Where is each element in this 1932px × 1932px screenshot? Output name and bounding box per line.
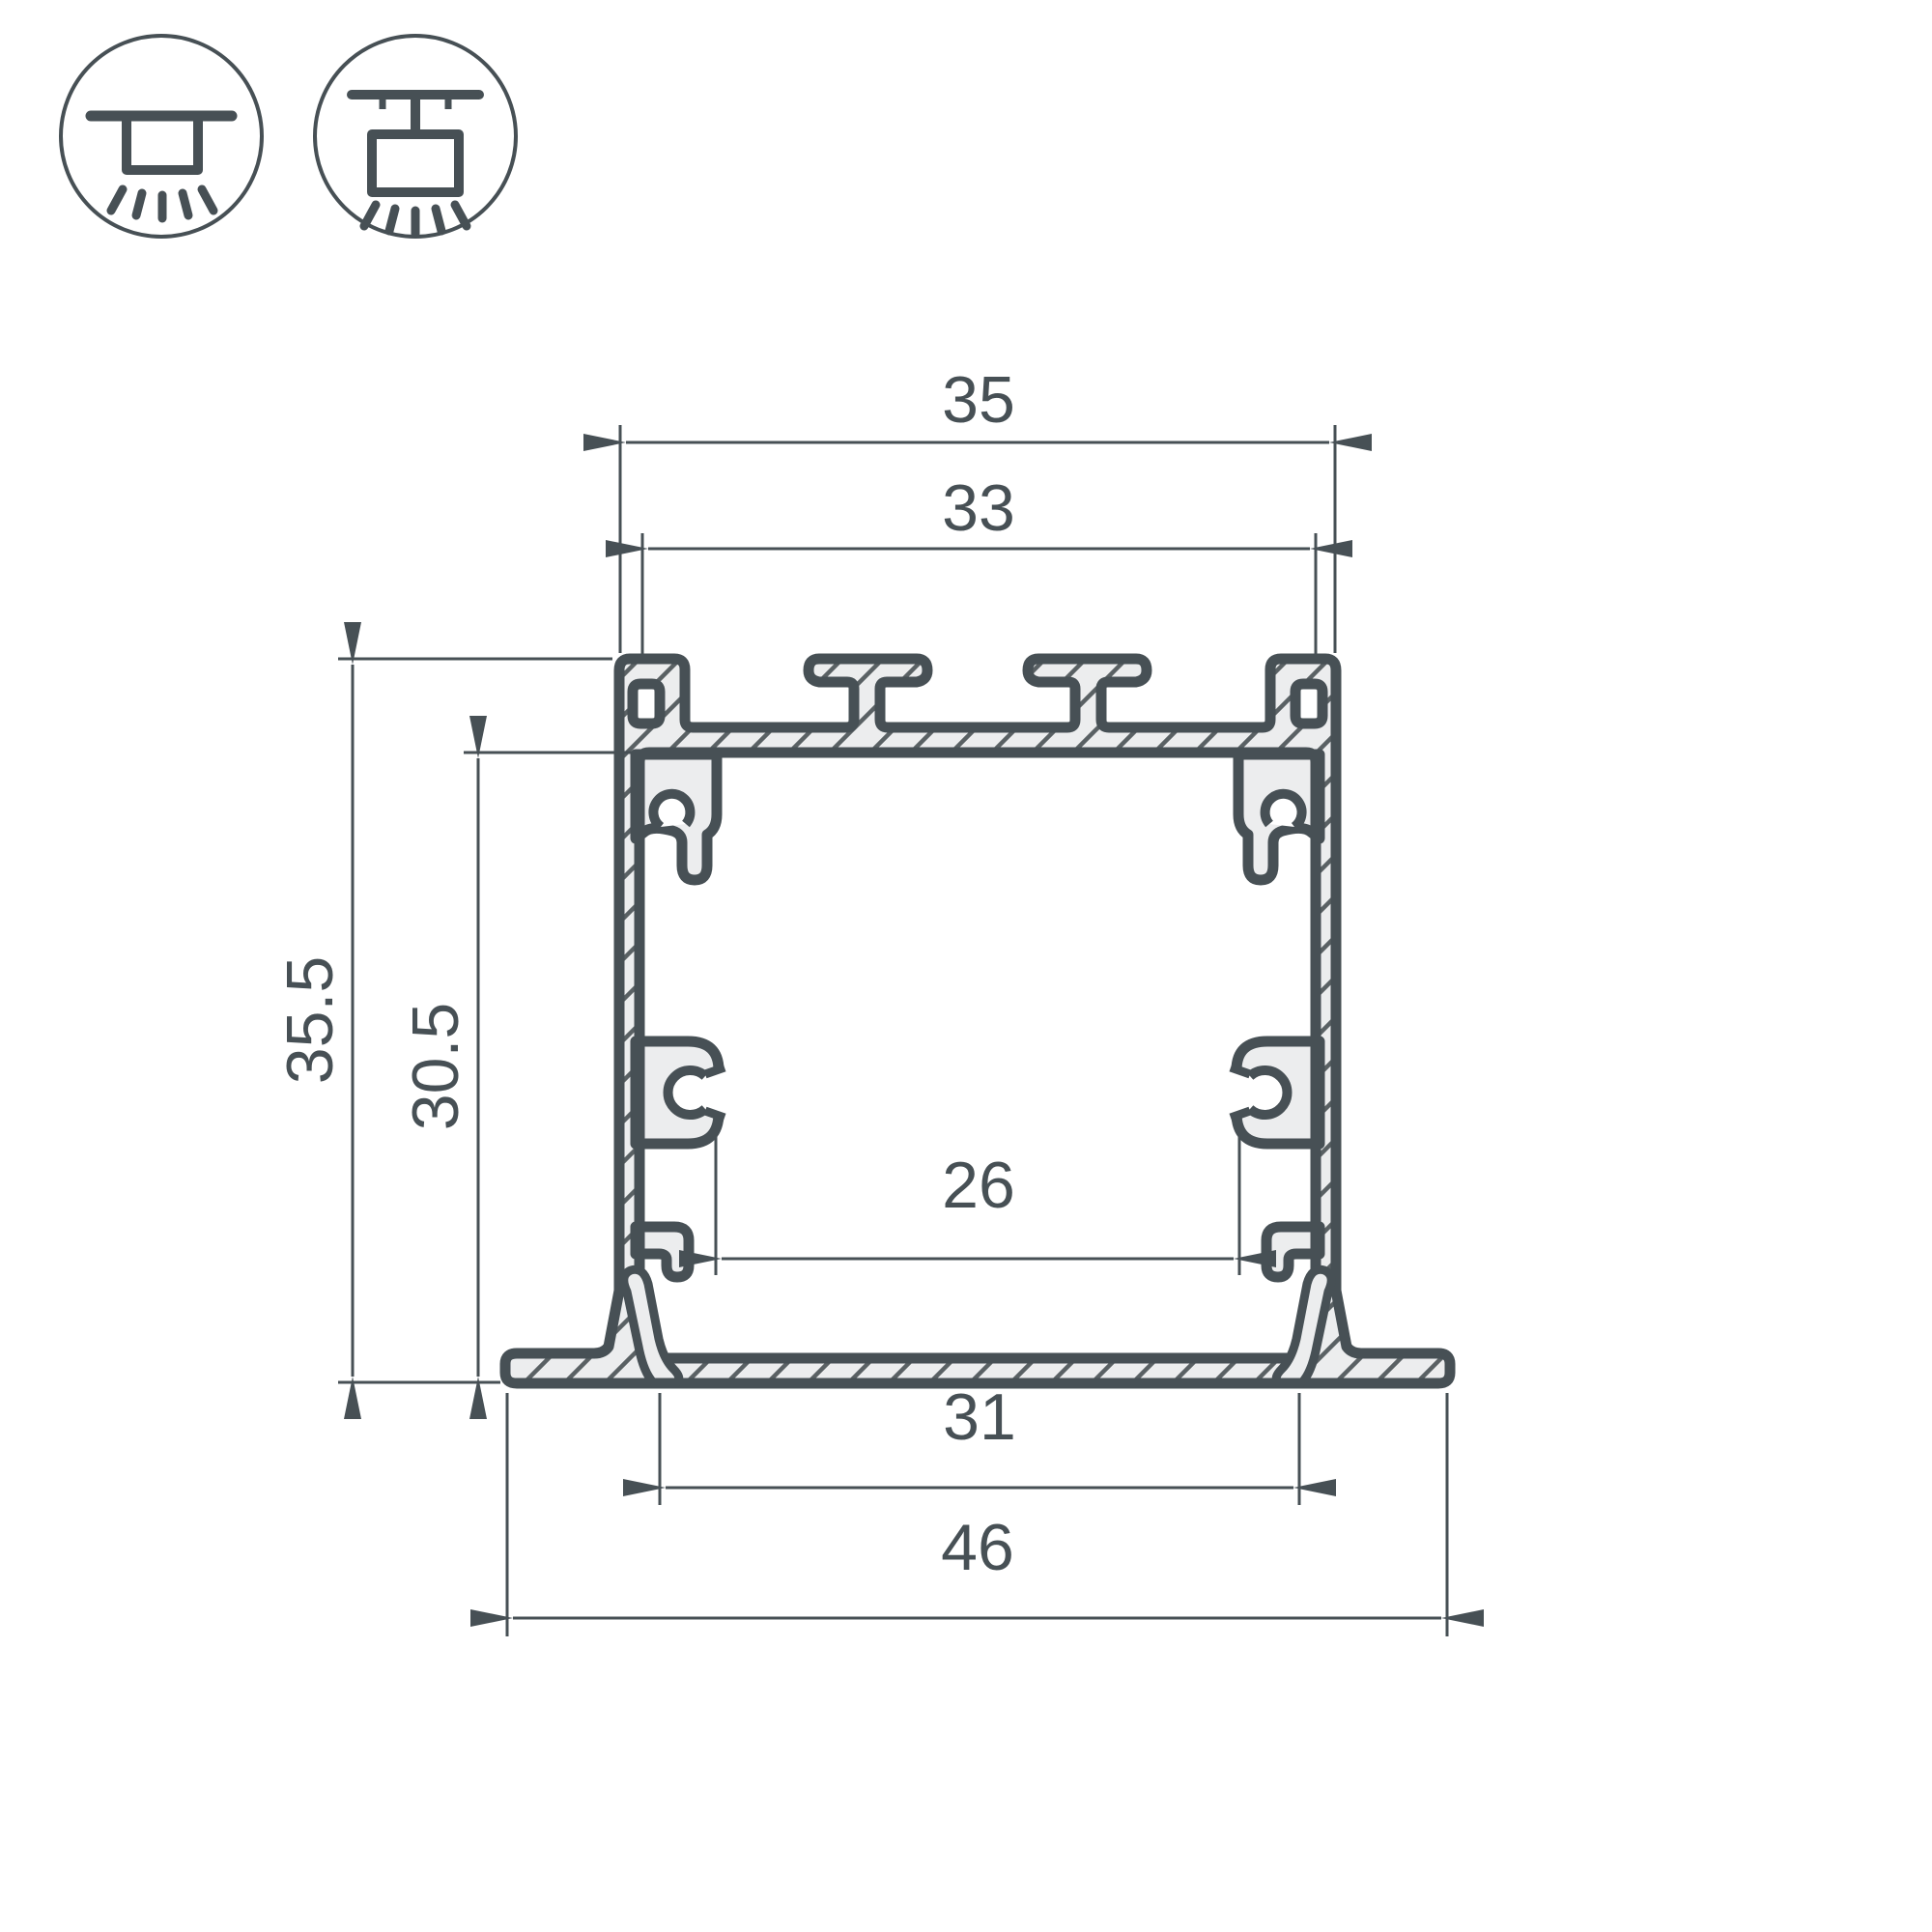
dim-label-height: 35.5 <box>273 956 347 1084</box>
left-bosses-outline <box>636 754 719 1277</box>
profile-drawing: 35 33 35.5 30.5 26 31 46 <box>0 0 1932 1932</box>
right-bosses-outline <box>1236 754 1320 1277</box>
dim-label-inner-width: 26 <box>942 1149 1015 1222</box>
dim-label-slot-width: 33 <box>942 471 1015 545</box>
dimension-lines <box>338 425 1447 1636</box>
surface-mount-icon <box>315 36 516 237</box>
dim-label-inner-height: 30.5 <box>399 1003 472 1130</box>
dim-label-base-inner-width: 31 <box>943 1380 1016 1454</box>
section-hatching <box>386 580 1565 1468</box>
profile-cross-section <box>386 580 1565 1468</box>
dim-label-flange-width: 46 <box>941 1511 1014 1584</box>
recessed-mount-icon <box>61 36 262 237</box>
dim-label-top-width: 35 <box>942 363 1015 437</box>
